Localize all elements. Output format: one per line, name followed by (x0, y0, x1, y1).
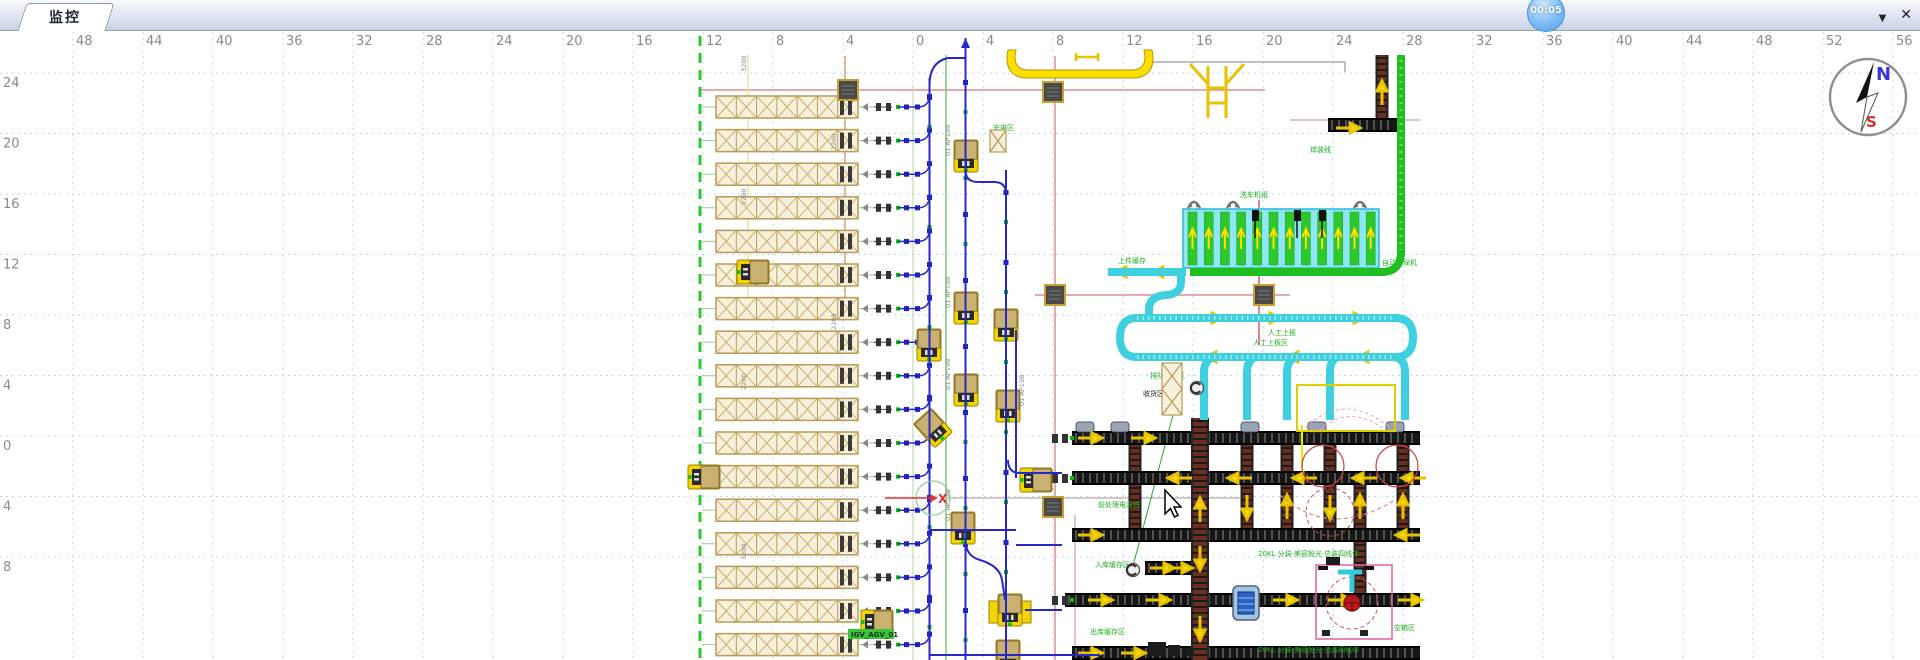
coupler (876, 473, 881, 481)
node-green (1070, 598, 1074, 602)
node-blue (915, 273, 920, 278)
top-ruler-label: 16 (636, 34, 653, 49)
conveyor-bank (1183, 202, 1379, 268)
conveyor-belt (1072, 431, 1420, 445)
conveyor-vertical (1281, 445, 1294, 471)
agv-cargo (997, 641, 1019, 659)
monitor-canvas[interactable]: 4844403632282420161284048121620242832364… (0, 0, 1920, 660)
blue-lift-station (1233, 586, 1259, 620)
diagram-label: 人工上板 (1268, 328, 1296, 337)
dimension-label: 3200 (740, 55, 748, 72)
top-ruler-label: 36 (286, 34, 303, 49)
node-blue (915, 407, 920, 412)
agv-screen (955, 531, 971, 540)
rack-endcap (840, 637, 844, 653)
rack-row (702, 94, 932, 118)
rack-endcap (840, 603, 844, 619)
diagram-label: 上件缓存 (1118, 256, 1146, 265)
node-blue (915, 575, 920, 580)
top-ruler-label: 32 (1476, 34, 1493, 49)
rack-row (702, 598, 932, 622)
node-blue (904, 340, 909, 345)
rack-row (702, 396, 932, 420)
branch-path (898, 366, 930, 376)
agv-screen-tick (1009, 411, 1012, 416)
mouse-cursor (1165, 490, 1181, 517)
branch-path (898, 299, 930, 309)
node-blue (915, 642, 920, 647)
left-ruler-label: 16 (3, 197, 20, 212)
agv-screen (1000, 409, 1016, 418)
branch-path (898, 534, 930, 544)
clamp-icon (1354, 202, 1366, 208)
rack-endcap (848, 133, 852, 149)
coupler (876, 237, 881, 245)
agv-cargo (999, 595, 1021, 613)
hook-icon (1294, 210, 1301, 221)
agv-status-led (862, 620, 865, 624)
coupler (876, 506, 881, 514)
rack-endcap (840, 200, 844, 216)
top-ruler-label: 48 (76, 34, 93, 49)
charging-station (1043, 82, 1063, 102)
agv-screen-tick (962, 313, 965, 318)
dimension-label: 01 AP19B (1018, 375, 1026, 406)
branch-path (898, 467, 930, 477)
charging-station (1043, 497, 1063, 517)
agv-screen-tick (694, 473, 699, 476)
top-ruler-label: 44 (1686, 34, 1703, 49)
coupler (886, 506, 891, 514)
top-ruler-label: 24 (1336, 34, 1353, 49)
rack-endcap (848, 368, 852, 384)
rack-endcap (840, 502, 844, 518)
agv-vehicle (996, 640, 1020, 660)
agv-wing (1022, 601, 1031, 623)
top-ruler-label: 36 (1546, 34, 1563, 49)
conveyor-vertical (1241, 445, 1254, 471)
agv-screen-tick (959, 533, 962, 538)
node-blue (904, 105, 909, 110)
branch-path (898, 265, 930, 275)
clamp-icon (1188, 202, 1200, 208)
top-ruler-label: 12 (1126, 34, 1143, 49)
coupler (886, 573, 891, 581)
node-blue (915, 306, 920, 311)
rack-row (702, 363, 932, 387)
top-ruler-label: 4 (986, 34, 994, 49)
agv-status-led (1008, 623, 1012, 626)
rack-row (702, 228, 932, 252)
top-ruler-label: 28 (426, 34, 443, 49)
rack-endcap (840, 267, 844, 283)
rack-row (702, 464, 932, 488)
rack-row (702, 161, 932, 185)
machine-icon (1111, 422, 1129, 432)
compass-north-label: N (1876, 64, 1891, 85)
node-blue (904, 172, 909, 177)
dimension-label: 01 AP19B (944, 277, 952, 308)
hook-icon (1319, 210, 1326, 221)
rack-endcap (848, 536, 852, 552)
node-blue (915, 609, 920, 614)
rack-row (702, 329, 932, 353)
rack-endcap (848, 435, 852, 451)
top-ruler-label: 52 (1826, 34, 1843, 49)
top-ruler-label: 56 (1896, 34, 1913, 49)
rack-endcap (840, 569, 844, 585)
diagram-label: 焊装线 (1310, 145, 1331, 154)
top-ruler-label: 40 (216, 34, 233, 49)
rack-arrow (862, 473, 868, 481)
branch-path (898, 131, 930, 141)
conveyor-belt (1072, 528, 1420, 542)
branch-path (898, 500, 930, 510)
coupler (876, 641, 881, 649)
rack-endcap (848, 99, 852, 115)
node-blue (915, 441, 920, 446)
diagram-label: 空箱区 (1394, 623, 1415, 632)
top-ruler-label: 28 (1406, 34, 1423, 49)
coupler (876, 338, 881, 346)
conveyor-row (1072, 528, 1420, 542)
top-ruler-label: 12 (706, 34, 723, 49)
coupler (886, 473, 891, 481)
agv-screen-tick (694, 478, 699, 481)
charging-station (1045, 285, 1065, 305)
diagram-label: 出库缓存区 (1090, 627, 1125, 636)
coupler (876, 204, 881, 212)
close-icon[interactable]: ✕ (1900, 6, 1912, 28)
rack-row (702, 195, 932, 219)
coupler (886, 405, 891, 413)
hook-icon (1252, 210, 1259, 221)
left-ruler-label: 4 (3, 379, 11, 394)
agv-status-led (738, 270, 741, 274)
coupler (886, 237, 891, 245)
diagram-label: 前处理电泳线 (1098, 500, 1140, 509)
left-ruler-label: 12 (3, 258, 20, 273)
road-marker (1076, 53, 1098, 61)
dropdown-icon[interactable]: ▼ (1879, 6, 1887, 28)
coupler (1052, 596, 1058, 605)
coupler (886, 204, 891, 212)
node-blue (904, 609, 909, 614)
coupler (876, 271, 881, 279)
top-ruler-label: 0 (916, 34, 924, 49)
coupler (876, 103, 881, 111)
top-ruler-label: 44 (146, 34, 163, 49)
agv-status-led (961, 541, 965, 544)
diagram-label: 收货区 (1143, 389, 1164, 398)
coupler (1062, 474, 1068, 483)
top-ruler-label: 20 (1266, 34, 1283, 49)
rack-endcap (840, 401, 844, 417)
dimension-label: 01 AP19B (944, 359, 952, 390)
branch-path (898, 97, 930, 107)
diagram-label: 20KL 分装·美容抛光·总装四线体 (1258, 645, 1359, 654)
agv-screen-tick (743, 273, 748, 276)
rack-endcap (848, 469, 852, 485)
node-blue (915, 205, 920, 210)
left-ruler-label: 20 (3, 137, 20, 152)
agv-cargo (750, 261, 768, 283)
rack-endcap (848, 603, 852, 619)
path-arrowhead (961, 38, 970, 48)
diagram-label: 人工上板区 (1253, 338, 1288, 347)
rack-endcap (840, 368, 844, 384)
node-blue (904, 575, 909, 580)
rack-row (702, 531, 932, 555)
agv-cargo (701, 466, 719, 488)
agv-screen-tick (1026, 476, 1031, 479)
compass-south-label: S (1866, 113, 1877, 131)
node-blue (904, 441, 909, 446)
rack-endcap (848, 200, 852, 216)
rack-endcap (840, 166, 844, 182)
node-blue (904, 642, 909, 647)
rack-arrow (862, 506, 868, 514)
diagram-label: 20KL 分装·美容抛光·总装四线体 (1258, 549, 1359, 558)
dimension-label: 2200 (830, 133, 838, 150)
rack-arrow (862, 641, 868, 649)
rack-endcap (848, 267, 852, 283)
branch-path (898, 399, 930, 409)
agv-screen-tick (1007, 330, 1010, 335)
coupler (1052, 474, 1058, 483)
coupler (886, 271, 891, 279)
branch-path (898, 198, 930, 208)
coupler (876, 372, 881, 380)
top-ruler-label: 32 (356, 34, 373, 49)
rack-endcap (840, 301, 844, 317)
conveyor-row (1072, 431, 1420, 445)
charging-station (1254, 285, 1274, 305)
node-blue (904, 474, 909, 479)
rack-row (702, 296, 932, 320)
rack-arrow (862, 237, 868, 245)
rack-arrow (862, 204, 868, 212)
coupler (886, 439, 891, 447)
branch-path (898, 567, 930, 577)
agv-screen-tick (967, 161, 970, 166)
rack-arrow (862, 338, 868, 346)
node-blue (915, 172, 920, 177)
diagram-label: 洗车机组 (1240, 190, 1268, 199)
diagram-label: 入库缓存区 (1095, 560, 1130, 569)
coupler (886, 540, 891, 548)
node-blue (915, 239, 920, 244)
agv-wing (989, 601, 998, 623)
top-ruler-label: 40 (1616, 34, 1633, 49)
coupler (886, 137, 891, 145)
dimension-label: 3200 (740, 543, 748, 560)
left-ruler-label: 0 (3, 439, 11, 454)
origin-x-label: X (938, 492, 948, 506)
left-ruler-label: 24 (3, 76, 20, 91)
agv-tag-text: IGV_AGV_01 (851, 631, 898, 639)
rack-row (702, 497, 932, 521)
agv-screen-tick (925, 350, 928, 355)
rack-endcap (848, 401, 852, 417)
rack-endcap (848, 233, 852, 249)
agv-screen-tick (962, 395, 965, 400)
agv-screen (692, 469, 701, 485)
rack-endcap (840, 99, 844, 115)
grid-lines (0, 32, 1920, 660)
top-ruler-label: 24 (496, 34, 513, 49)
agv-vehicle (688, 465, 720, 489)
rack-row (702, 564, 932, 588)
node-blue (904, 138, 909, 143)
coupler (886, 372, 891, 380)
coupler (876, 573, 881, 581)
node-blue (904, 373, 909, 378)
rack-arrow (862, 372, 868, 380)
rack-arrow (862, 305, 868, 313)
top-ruler-label: 4 (846, 34, 854, 49)
agv-screen-tick (962, 161, 965, 166)
agv-screen-tick (967, 313, 970, 318)
coupler (876, 137, 881, 145)
coupler (876, 439, 881, 447)
coupler (876, 405, 881, 413)
branch-path (898, 635, 930, 645)
conveyor-vertical (1397, 445, 1410, 471)
agv-vehicle (737, 260, 769, 284)
branch-path (898, 164, 930, 174)
dimension-label: 2200 (740, 188, 748, 205)
node-blue (915, 474, 920, 479)
top-ruler-label: 20 (566, 34, 583, 49)
tab-monitor[interactable]: 监控 (22, 3, 108, 30)
node-blue (915, 138, 920, 143)
rack-arrow (862, 405, 868, 413)
rack-endcap (848, 334, 852, 350)
rack-endcap (848, 569, 852, 585)
agv-status-led (1021, 478, 1024, 482)
node-blue (904, 508, 909, 513)
rack-row (702, 128, 932, 152)
node-blue (904, 407, 909, 412)
conveyor-row (1328, 118, 1397, 132)
agv-screen (865, 614, 874, 630)
rack-endcap (840, 435, 844, 451)
left-ruler-label: 8 (3, 560, 11, 575)
dimension-label: 2200 (740, 373, 748, 390)
agv-screen-tick (967, 395, 970, 400)
rack-endcap (848, 166, 852, 182)
agv-screen-tick (1002, 330, 1005, 335)
charging-station (838, 80, 858, 100)
agv-screen-tick (743, 268, 748, 271)
agv-screen-tick (867, 618, 872, 621)
left-ruler-label: 8 (3, 318, 11, 333)
agv-screen (741, 264, 750, 280)
node-blue (904, 541, 909, 546)
node-blue (904, 306, 909, 311)
rack-row (702, 430, 932, 454)
rack-endcap (848, 301, 852, 317)
agv-screen-tick (867, 623, 872, 626)
coupler (1062, 596, 1068, 605)
rack-endcap (840, 536, 844, 552)
node-green (1070, 476, 1074, 480)
tab-label: 监控 (22, 7, 108, 27)
rack-endcap (840, 469, 844, 485)
machine-icon (1076, 422, 1094, 432)
rack-arrow (862, 540, 868, 548)
rack-endcap (840, 334, 844, 350)
node-blue (904, 273, 909, 278)
dimension-label: 01 AP19B (944, 125, 952, 156)
branch-path (898, 601, 930, 611)
coupler (1062, 434, 1068, 443)
agv-cargo (952, 513, 974, 531)
clamp-icon (1227, 202, 1239, 208)
equipment-cluster (1148, 642, 1194, 656)
node-blue (915, 541, 920, 546)
rack-arrow (862, 271, 868, 279)
agv-screen (1024, 472, 1033, 488)
rack-arrow (862, 170, 868, 178)
agv-status-led (689, 475, 692, 479)
top-ruler-label: 16 (1196, 34, 1213, 49)
node-green (1070, 436, 1074, 440)
rack-endcap (840, 133, 844, 149)
agv-vehicle (951, 512, 975, 544)
compass: N S (1830, 59, 1906, 135)
coupler (886, 103, 891, 111)
top-ruler-label: 8 (776, 34, 784, 49)
machine-icon (1241, 422, 1259, 432)
agv-screen-tick (1011, 615, 1014, 620)
agv-vehicle (989, 594, 1031, 626)
node-blue (904, 205, 909, 210)
rack-arrow (862, 573, 868, 581)
coupler (886, 305, 891, 313)
agv-vehicle (1020, 468, 1052, 492)
title-bar: 监控 ▼ ✕ (0, 0, 1920, 31)
rack-arrow (862, 439, 868, 447)
dimension-label: 2200 (830, 313, 838, 330)
rack-arrow (862, 137, 868, 145)
coupler (1052, 434, 1058, 443)
rack-arrow (862, 103, 868, 111)
coupler (886, 338, 891, 346)
branch-path (898, 231, 930, 241)
coupler (886, 641, 891, 649)
node-blue (915, 105, 920, 110)
conveyor-vertical (1129, 445, 1142, 471)
top-ruler-label: 8 (1056, 34, 1064, 49)
rack-endcap (840, 233, 844, 249)
top-ruler-label: 48 (1756, 34, 1773, 49)
yellow-frame (1190, 64, 1244, 118)
coupler (876, 305, 881, 313)
node-blue (904, 239, 909, 244)
coupler (876, 170, 881, 178)
agv-screen (1002, 613, 1018, 622)
agv-screen-tick (1026, 481, 1031, 484)
yellow-road (1007, 50, 1153, 78)
coupler (886, 170, 891, 178)
node-blue (915, 373, 920, 378)
coupler (876, 540, 881, 548)
left-ruler-label: 4 (3, 500, 11, 515)
agv-tag: IGV_AGV_01 (848, 629, 898, 639)
rack-endcap (848, 502, 852, 518)
